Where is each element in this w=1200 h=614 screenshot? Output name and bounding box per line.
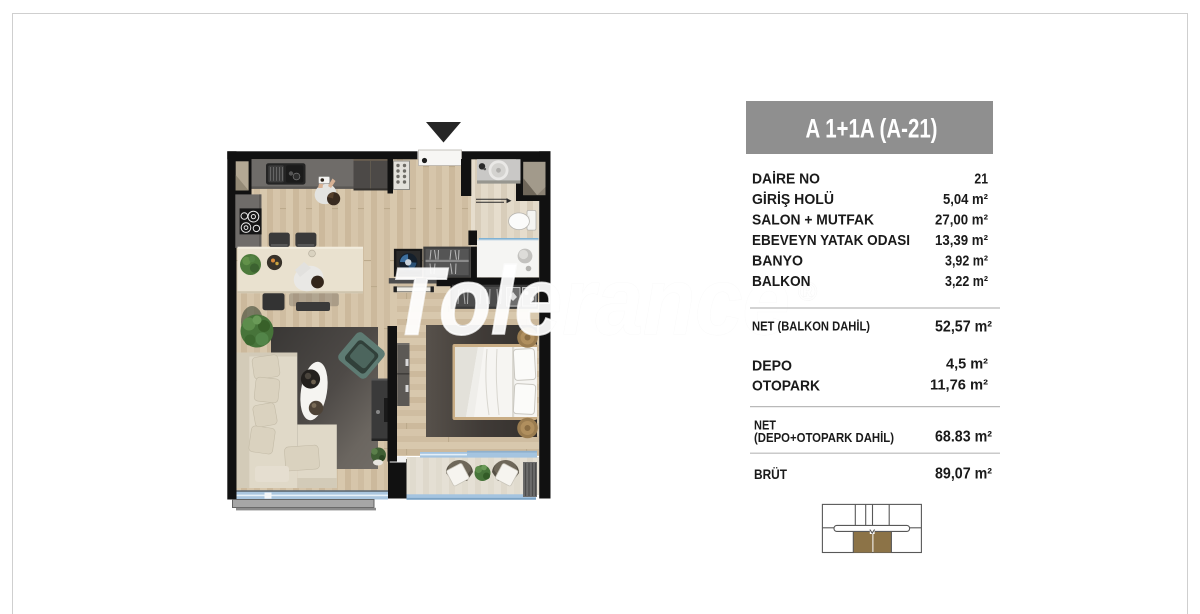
svg-text:(DEPO+OTOPARK DAHİL): (DEPO+OTOPARK DAHİL) [754,430,894,445]
svg-text:DAİRE NO: DAİRE NO [752,171,820,188]
svg-text:4,5 m²: 4,5 m² [946,356,988,372]
svg-text:5,04 m²: 5,04 m² [943,192,988,208]
svg-text:11,76 m²: 11,76 m² [930,378,988,394]
svg-text:GİRİŞ HOLÜ: GİRİŞ HOLÜ [752,191,834,208]
svg-text:BALKON: BALKON [752,274,811,290]
svg-text:DEPO: DEPO [752,358,792,374]
svg-text:Tolerance: Tolerance [390,248,790,355]
svg-text:EBEVEYN YATAK ODASI: EBEVEYN YATAK ODASI [752,233,910,249]
svg-text:BANYO: BANYO [752,254,803,270]
svg-text:NET (BALKON DAHİL): NET (BALKON DAHİL) [752,318,870,333]
svg-text:13,39 m²: 13,39 m² [935,233,988,249]
svg-text:BRÜT: BRÜT [754,466,787,482]
svg-text:SALON + MUTFAK: SALON + MUTFAK [752,213,874,229]
svg-text:3,22 m²: 3,22 m² [945,274,988,290]
svg-text:21: 21 [974,172,988,188]
svg-text:OTOPARK: OTOPARK [752,379,820,395]
svg-text:89,07 m²: 89,07 m² [935,466,992,483]
svg-text:52,57 m²: 52,57 m² [935,319,992,336]
svg-text:27,00 m²: 27,00 m² [935,213,988,229]
svg-text:A 1+1A (A-21): A 1+1A (A-21) [806,114,938,144]
svg-text:68.83 m²: 68.83 m² [935,429,992,446]
svg-text:3,92 m²: 3,92 m² [945,254,988,270]
